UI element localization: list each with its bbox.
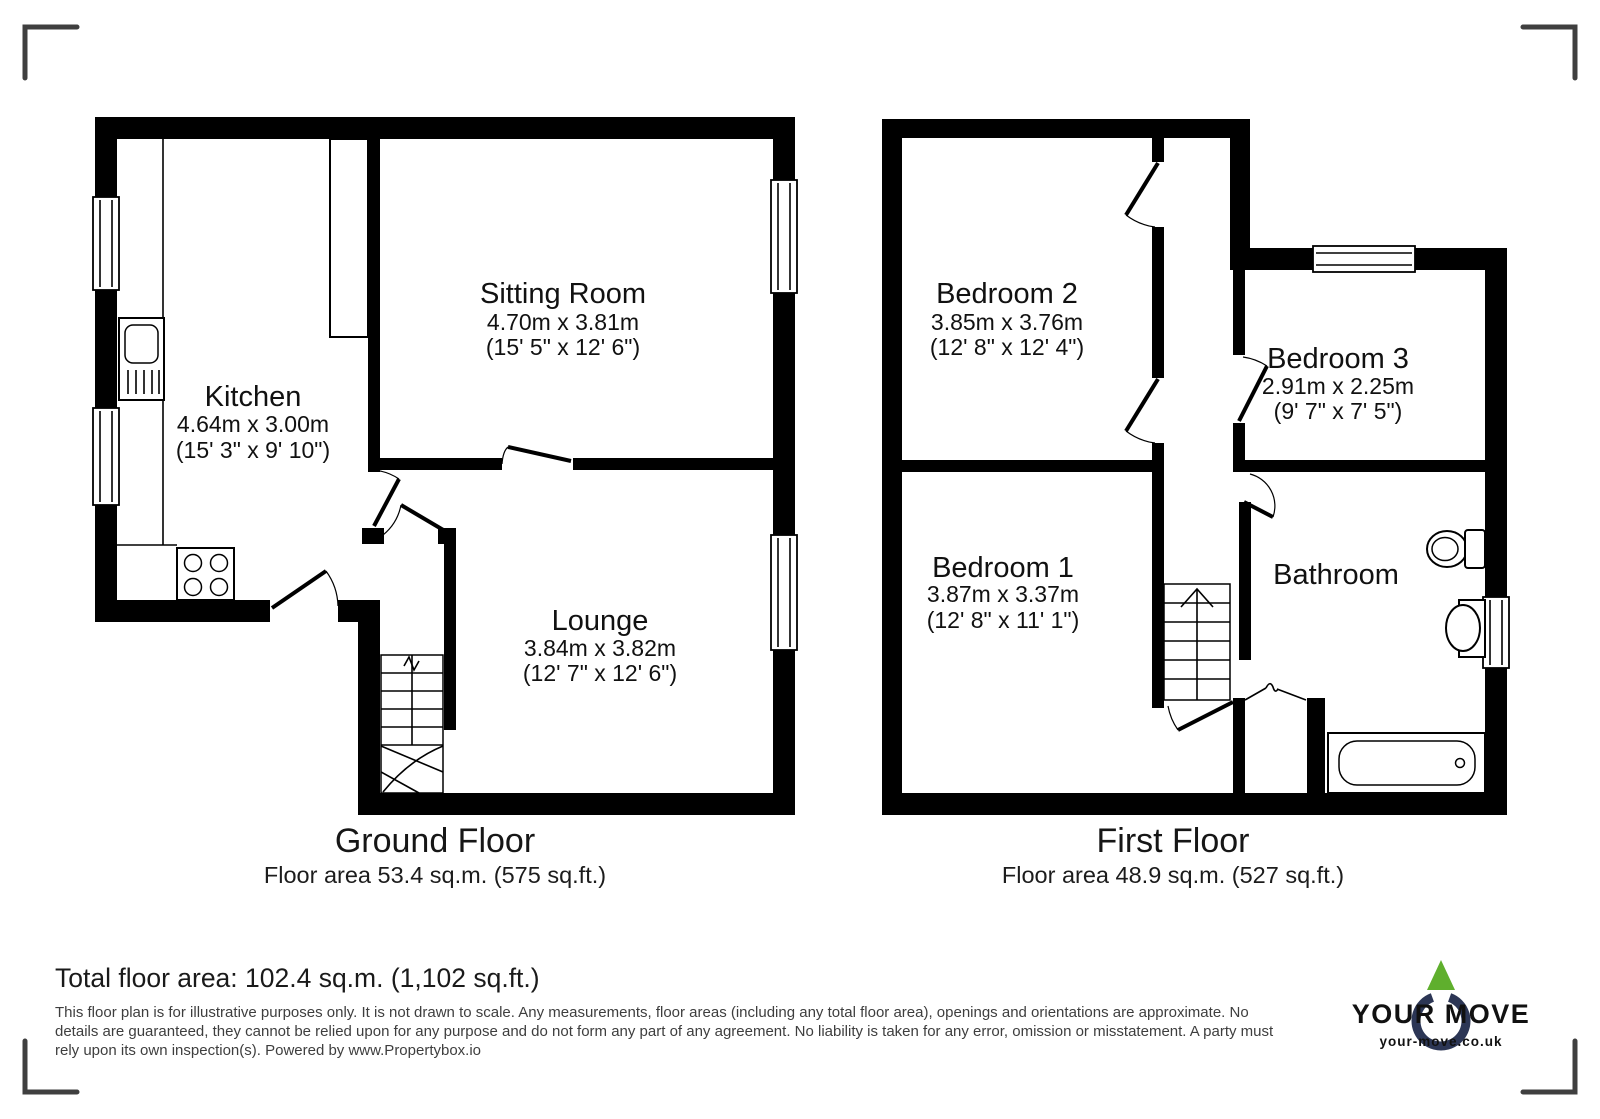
- floorplan-canvas: Kitchen 4.64m x 3.00m (15' 3" x 9' 10") …: [0, 0, 1600, 1119]
- kitchen-dim-imperial: (15' 3" x 9' 10"): [176, 437, 330, 463]
- bedroom2-dim-imperial: (12' 8" x 12' 4"): [930, 334, 1084, 360]
- logo-brand-text: YOUR MOVE: [1352, 999, 1531, 1029]
- basin-icon: [1446, 600, 1485, 657]
- logo-website-text: your-move.co.uk: [1379, 1034, 1502, 1049]
- first-floor-walls: [882, 119, 1507, 815]
- kitchen-counter: [330, 139, 368, 337]
- window-icon: [771, 180, 797, 293]
- stove-icon: [177, 548, 234, 600]
- door-vestibule: [383, 505, 445, 535]
- bedroom1-label: Bedroom 1: [932, 552, 1074, 584]
- window-icon: [93, 197, 119, 290]
- bedroom3-label: Bedroom 3: [1267, 343, 1409, 375]
- lounge-dim-metric: 3.84m x 3.82m: [524, 635, 676, 661]
- bathroom-label: Bathroom: [1273, 559, 1399, 591]
- door-stairs-bottom: [1168, 702, 1233, 730]
- kitchen-label: Kitchen: [205, 381, 302, 413]
- ground-floor-stairs: [381, 655, 443, 793]
- door-bedroom2: [1126, 379, 1158, 443]
- kitchen-dim-metric: 4.64m x 3.00m: [177, 411, 329, 437]
- sitting-room-dim-metric: 4.70m x 3.81m: [487, 309, 639, 335]
- bedroom3-dim-imperial: (9' 7" x 7' 5"): [1274, 398, 1403, 424]
- first-floor-plan: Bedroom 2 3.85m x 3.76m (12' 8" x 12' 4"…: [882, 119, 1509, 888]
- sitting-room-dim-imperial: (15' 5" x 12' 6"): [486, 334, 640, 360]
- window-icon: [1483, 597, 1509, 668]
- crop-mark-bottom-right: [1523, 1041, 1575, 1092]
- door-back: [272, 571, 338, 608]
- sitting-room-label: Sitting Room: [480, 278, 646, 310]
- bedroom1-dim-imperial: (12' 8" x 11' 1"): [927, 607, 1080, 633]
- ground-floor-walls: [95, 117, 795, 815]
- total-floor-area: Total floor area: 102.4 sq.m. (1,102 sq.…: [55, 963, 540, 993]
- lounge-dim-imperial: (12' 7" x 12' 6"): [523, 660, 677, 686]
- ground-floor-plan: Kitchen 4.64m x 3.00m (15' 3" x 9' 10") …: [93, 117, 797, 888]
- first-floor-stairs: [1164, 584, 1230, 700]
- kitchen-fixtures: [117, 139, 368, 600]
- door-kitchen-hall: [371, 470, 399, 526]
- disclaimer-text: This floor plan is for illustrative purp…: [55, 1003, 1295, 1060]
- first-floor-area: Floor area 48.9 sq.m. (527 sq.ft.): [1002, 862, 1344, 888]
- window-icon: [771, 535, 797, 650]
- sink-icon: [119, 318, 164, 400]
- ground-floor-title: Ground Floor: [335, 822, 535, 860]
- your-move-logo: YOUR MOVE your-move.co.uk: [1352, 960, 1531, 1049]
- opening-marks: [1245, 684, 1306, 700]
- toilet-icon: [1427, 530, 1485, 568]
- floorplan-page: Kitchen 4.64m x 3.00m (15' 3" x 9' 10") …: [0, 0, 1600, 1119]
- bedroom1-dim-metric: 3.87m x 3.37m: [927, 581, 1079, 607]
- bedroom2-label: Bedroom 2: [936, 278, 1078, 310]
- bathtub-icon: [1328, 733, 1485, 793]
- lounge-label: Lounge: [552, 605, 649, 637]
- ground-floor-area: Floor area 53.4 sq.m. (575 sq.ft.): [264, 862, 606, 888]
- bedroom3-dim-metric: 2.91m x 2.25m: [1262, 373, 1414, 399]
- door-sitting-room: [502, 447, 571, 464]
- first-floor-title: First Floor: [1097, 822, 1250, 860]
- window-icon: [1313, 246, 1415, 272]
- ground-floor-doors: [272, 447, 571, 608]
- crop-mark-top-left: [25, 27, 77, 78]
- logo-triangle: [1427, 960, 1455, 990]
- crop-mark-top-right: [1523, 27, 1575, 78]
- window-icon: [93, 408, 119, 505]
- bedroom2-dim-metric: 3.85m x 3.76m: [931, 309, 1083, 335]
- door-bedroom2-top: [1126, 163, 1158, 227]
